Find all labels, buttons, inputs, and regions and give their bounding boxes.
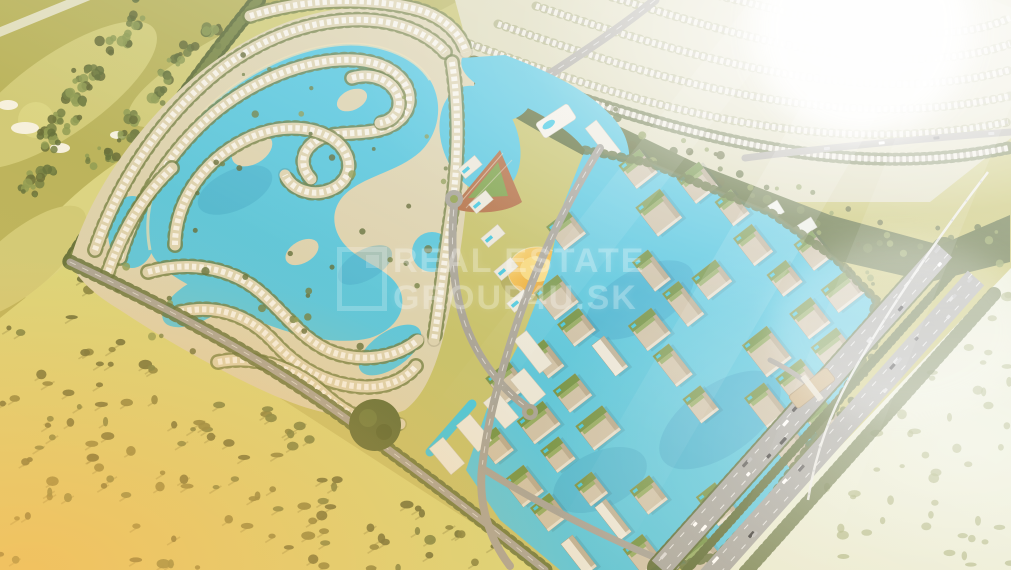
watermark-line2: GROUP4U.SK	[393, 281, 638, 315]
watermark-line1: REAL ESTATE	[393, 244, 645, 278]
watermark-logo-mark	[366, 255, 379, 268]
aerial-masterplan-render: REAL ESTATE GROUP4U.SK	[0, 0, 1011, 570]
watermark-logo	[337, 247, 387, 311]
